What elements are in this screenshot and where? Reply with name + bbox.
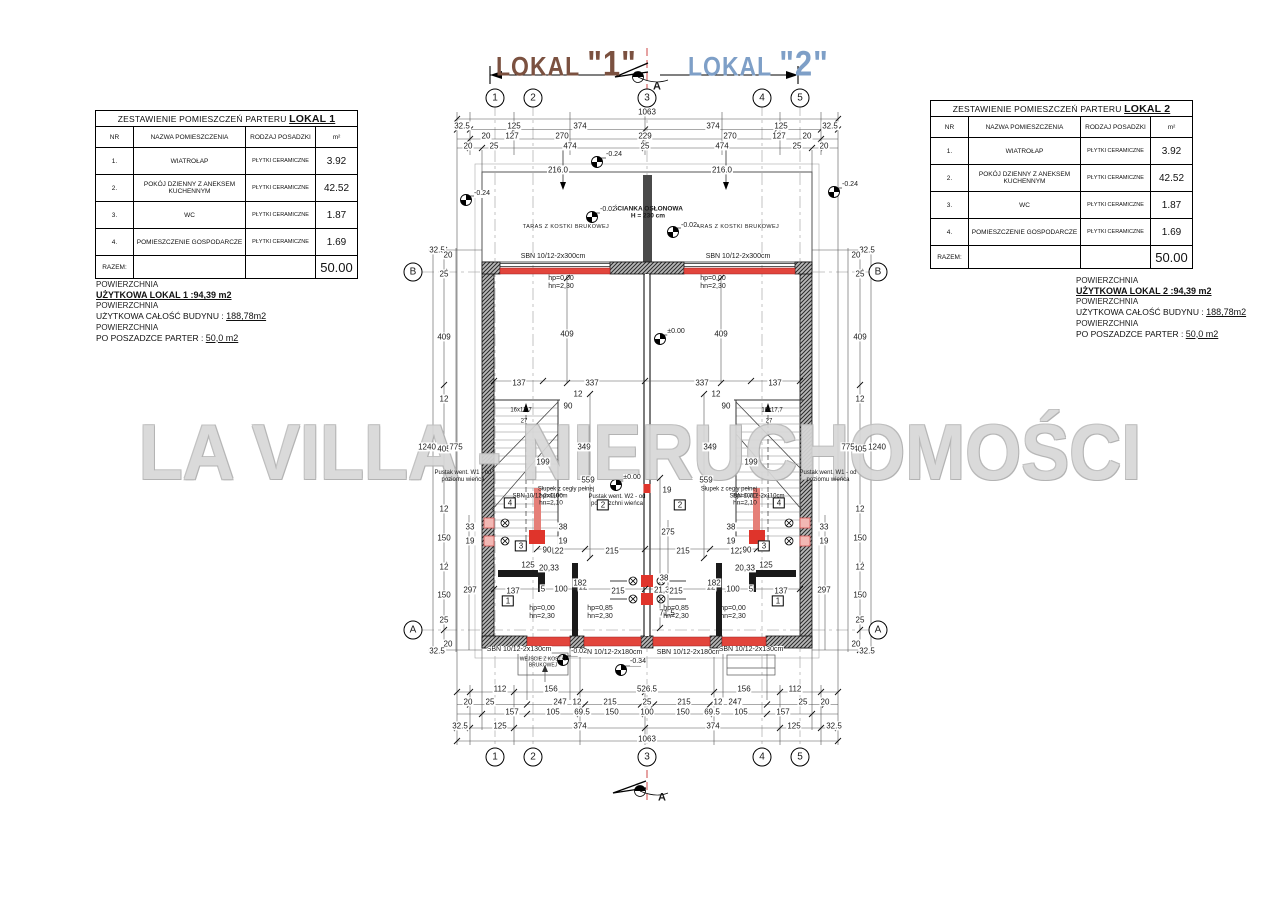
note-total-building: UŻYTKOWA CAŁOŚĆ BUDYNU : 188,78m2: [1076, 307, 1280, 318]
construction-note: Pustak went. W1 - od poziomu wieńca: [434, 470, 491, 484]
section-letter: A: [658, 792, 666, 805]
lintel-label: SBN 10/12-2x180cm: [578, 649, 643, 657]
terrace-label: TARAS Z KOSTKI BRUKOWEJ: [523, 224, 609, 230]
dim-label: 156: [543, 684, 558, 693]
dim-label: 270: [722, 131, 737, 140]
dim-label-vertical: 775: [448, 442, 463, 451]
room-number: 3: [758, 540, 770, 551]
room-number: 4: [504, 497, 516, 508]
dim-label: 125: [506, 121, 521, 130]
dim-label-vertical: 216.0: [711, 165, 733, 174]
dim-label: 1063: [637, 107, 657, 116]
dim-label: 69.5: [573, 707, 591, 716]
dim-label: 247: [552, 697, 567, 706]
table-row: 4.POMIESZCZENIE GOSPODARCZEPŁYTKI CERAMI…: [96, 229, 358, 256]
dim-label: 229: [637, 131, 652, 140]
note-heading: POWIERZCHNIA: [96, 301, 326, 311]
dim-label-vertical: 297: [462, 585, 477, 594]
note-heading: POWIERZCHNIA: [1076, 297, 1280, 307]
dim-label: 112: [788, 684, 803, 693]
dim-label-vertical: 1240: [417, 442, 437, 451]
screen-wall-label: ŚCIANKA OSŁONOWA H = 230 cm: [613, 206, 683, 221]
table-row: 4.POMIESZCZENIE GOSPODARCZEPŁYTKI CERAMI…: [931, 219, 1193, 246]
dim-label: 25: [640, 141, 651, 150]
dim-label-vertical: 409: [713, 329, 728, 338]
total-value: 50.00: [316, 256, 358, 279]
dim-label-vertical: 19: [819, 536, 830, 545]
dim-label: 20: [802, 131, 813, 140]
opening-height-label: hp=0,00 hn=2,30: [529, 605, 555, 621]
dim-label-vertical: 297: [816, 585, 831, 594]
room-number: 4: [773, 497, 785, 508]
dim-label: 25: [485, 697, 496, 706]
table-title-row: ZESTAWIENIE POMIESZCZEŃ PARTERU LOKAL 2: [931, 101, 1193, 117]
dim-label: 215: [604, 546, 619, 555]
dim-label: 247: [727, 697, 742, 706]
dim-label-vertical: 12: [855, 562, 866, 571]
dim-label-vertical: 12: [855, 394, 866, 403]
dim-label-vertical: 20,33: [538, 563, 560, 572]
dim-label: 105: [545, 707, 560, 716]
dim-label: 374: [705, 121, 720, 130]
dim-label-vertical: 90: [742, 545, 753, 554]
dim-label: 100: [639, 707, 654, 716]
opening-height-label: hp=0,00 hn=2,30: [548, 275, 574, 291]
level-label: -0.02: [681, 222, 697, 230]
dim-label-vertical: 32.5: [858, 646, 876, 655]
dim-label-vertical: 25: [855, 615, 866, 624]
grid-bubble: 5: [791, 748, 810, 767]
table-row: 3.WCPŁYTKI CERAMICZNE1.87: [931, 192, 1193, 219]
dim-label: 337: [584, 378, 599, 387]
dim-label-vertical: 559: [580, 475, 595, 484]
lokal1-label: LOKAL "1": [496, 43, 637, 84]
dim-label-vertical: 409: [852, 332, 867, 341]
dim-label: 374: [705, 721, 720, 730]
dim-label: 474: [714, 141, 729, 150]
dim-label: 125: [786, 721, 801, 730]
dim-label: 137: [505, 586, 520, 595]
lintel-label: SBN 10/12-2x300cm: [706, 253, 771, 261]
level-label: -0.24: [842, 181, 858, 189]
lokal1-number: "1": [587, 43, 637, 83]
dim-label-vertical: 38: [659, 573, 670, 582]
dim-label: 215: [676, 697, 691, 706]
level-label: -0.34: [630, 658, 646, 666]
grid-bubble: 5: [791, 89, 810, 108]
dim-label: 215: [602, 697, 617, 706]
dim-label-vertical: 19: [726, 536, 737, 545]
level-label: -0.24: [474, 190, 490, 198]
grid-bubble: 2: [524, 748, 543, 767]
grid-bubble: 3: [638, 748, 657, 767]
note-heading: POWIERZCHNIA: [96, 323, 326, 333]
dim-label-vertical: 25: [855, 269, 866, 278]
dim-label-vertical: 19: [662, 485, 673, 494]
dim-label: 32.5: [821, 121, 839, 130]
stair-label: 27: [766, 419, 773, 426]
lintel-label: SBN 10/12-2x130cm: [719, 646, 784, 654]
dim-label: 20: [820, 697, 831, 706]
total-value: 50.00: [1151, 246, 1193, 269]
col-nr: NR: [96, 127, 134, 148]
dim-label-vertical: 150: [852, 533, 867, 542]
stair-label: 16x17,7: [761, 408, 782, 415]
level-label: ±0.00: [667, 328, 684, 336]
dim-label: 100: [725, 584, 740, 593]
section-letter: A: [653, 81, 661, 94]
opening-height-label: hp=0,85 hn=2,30: [587, 605, 613, 621]
dim-label-vertical: 1240: [867, 442, 887, 451]
note-heading: POWIERZCHNIA: [1076, 276, 1280, 286]
floor-plan-sheet: LA VILLA - NIERUCHOMOŚCI LOKAL "1" LOKAL…: [0, 0, 1280, 905]
entrance-label: WEJŚCIE Z KOSTKI BRUKOWEJ: [520, 657, 566, 669]
col-area: m²: [1151, 117, 1193, 138]
lintel-label: SBN 10/12-2x130cm: [487, 646, 552, 654]
dim-label: 125: [758, 560, 773, 569]
dim-label: 25: [489, 141, 500, 150]
dim-label-vertical: 38: [558, 522, 569, 531]
dim-label-vertical: 33: [465, 522, 476, 531]
dim-label: 150: [604, 707, 619, 716]
dim-label-vertical: 33: [819, 522, 830, 531]
dim-label: 32.5: [451, 721, 469, 730]
dim-label: 25: [642, 697, 653, 706]
dim-label-vertical: 150: [436, 590, 451, 599]
dim-label-vertical: 20: [851, 250, 862, 259]
grid-bubble: A: [869, 621, 888, 640]
construction-note: Słupek z cegły pełnej: [538, 487, 594, 494]
dim-label: 137: [511, 378, 526, 387]
dim-label-vertical: 409: [559, 329, 574, 338]
dim-label: 374: [572, 121, 587, 130]
dim-label: 127: [504, 131, 519, 140]
room-number: 1: [502, 595, 514, 606]
dim-label: 12: [713, 697, 724, 706]
construction-note: SBN 10/12-2x110cm: [513, 494, 568, 501]
dim-label: 270: [554, 131, 569, 140]
dim-label: 20: [481, 131, 492, 140]
dim-label-vertical: 25: [439, 615, 450, 624]
note-usable-area: UŻYTKOWA LOKAL 2 :94,39 m2: [1076, 286, 1280, 297]
level-label: -0.02: [600, 206, 616, 214]
grid-bubble: 4: [753, 748, 772, 767]
grid-bubble: B: [404, 263, 423, 282]
dim-label: 127: [771, 131, 786, 140]
table-title: ZESTAWIENIE POMIESZCZEŃ PARTERU: [953, 104, 1124, 114]
watermark: LA VILLA - NIERUCHOMOŚCI: [139, 409, 1142, 498]
room-number: 1: [772, 595, 784, 606]
dim-label-vertical: 12: [439, 562, 450, 571]
dim-label: 125: [520, 560, 535, 569]
dim-label: 156: [736, 684, 751, 693]
dim-label-vertical: 90: [542, 545, 553, 554]
lokal2-number: "2": [779, 43, 829, 83]
dim-label-vertical: 90: [721, 401, 732, 410]
dim-label: 20: [819, 141, 830, 150]
dim-label: 337: [694, 378, 709, 387]
dim-label-vertical: 20: [443, 250, 454, 259]
dim-label: 20: [463, 141, 474, 150]
stair-label: 16x17,7: [510, 408, 531, 415]
table-title-bold: LOKAL 1: [289, 113, 335, 125]
col-area: m²: [316, 127, 358, 148]
dim-label-vertical: 182: [572, 578, 587, 587]
note-total-building: UŻYTKOWA CAŁOŚĆ BUDYNU : 188,78m2: [96, 311, 326, 322]
table-header-row: NR NAZWA POMIESZCZENIA RODZAJ POSADZKI m…: [96, 127, 358, 148]
dim-label: 137: [773, 586, 788, 595]
col-name: NAZWA POMIESZCZENIA: [969, 117, 1081, 138]
note-heading: POWIERZCHNIA: [96, 280, 326, 290]
dim-label: 157: [775, 707, 790, 716]
dim-label-vertical: 90: [563, 401, 574, 410]
lokal2-prefix: LOKAL: [688, 51, 772, 81]
dim-label-vertical: 409: [436, 332, 451, 341]
lokal1-prefix: LOKAL: [496, 51, 580, 81]
dim-label-vertical: 275: [660, 527, 675, 536]
dim-label-vertical: 12: [711, 389, 722, 398]
dim-label: 25: [792, 141, 803, 150]
dim-label: 112: [493, 684, 508, 693]
dim-label: 5: [540, 584, 546, 593]
col-floor: RODZAJ POSADZKI: [246, 127, 316, 148]
dim-label: 157: [504, 707, 519, 716]
lokal2-label: LOKAL "2": [688, 43, 829, 84]
grid-bubble: 1: [486, 89, 505, 108]
note-heading: POWIERZCHNIA: [1076, 319, 1280, 329]
grid-bubble: B: [869, 263, 888, 282]
dim-label: 215: [675, 546, 690, 555]
lintel-label: SBN 10/12-2x180cm: [657, 649, 722, 657]
dim-label-vertical: 12: [573, 389, 584, 398]
col-nr: NR: [931, 117, 969, 138]
opening-height-label: hp=0,85 hn=2,30: [663, 605, 689, 621]
dim-label-vertical: 19: [558, 536, 569, 545]
opening-height-label: hp=0,00 hn=2,30: [700, 275, 726, 291]
dim-label: 374: [572, 721, 587, 730]
table-total-row: RAZEM:50.00: [96, 256, 358, 279]
dim-label: 69.5: [703, 707, 721, 716]
dim-label: 137: [767, 378, 782, 387]
dim-label-vertical: 150: [436, 533, 451, 542]
grid-bubble: 2: [524, 89, 543, 108]
table-row: 2.POKÓJ DZIENNY Z ANEKSEM KUCHENNYMPŁYTK…: [931, 165, 1193, 192]
dim-label-vertical: 38: [726, 522, 737, 531]
dim-label-vertical: 19: [465, 536, 476, 545]
dim-label: 12: [572, 697, 583, 706]
room-number: 2: [674, 499, 686, 510]
note-usable-area: UŻYTKOWA LOKAL 1 :94,39 m2: [96, 290, 326, 301]
construction-note: Pustak went. W1 - od poziomu wieńca: [799, 470, 856, 484]
dim-label: 105: [733, 707, 748, 716]
terrace-label: TARAS Z KOSTKI BRUKOWEJ: [693, 224, 779, 230]
table-title-row: ZESTAWIENIE POMIESZCZEŃ PARTERU LOKAL 1: [96, 111, 358, 127]
dim-label-vertical: 199: [535, 457, 550, 466]
dim-label: 100: [553, 584, 568, 593]
construction-note: Słupek z cegły pełnej: [701, 487, 757, 494]
level-label: ±0.00: [623, 474, 640, 482]
rooms-table-lokal2: ZESTAWIENIE POMIESZCZEŃ PARTERU LOKAL 2 …: [930, 100, 1193, 269]
col-floor: RODZAJ POSADZKI: [1081, 117, 1151, 138]
table-header-row: NR NAZWA POMIESZCZENIA RODZAJ POSADZKI m…: [931, 117, 1193, 138]
dim-label: 215: [668, 586, 683, 595]
total-label: RAZEM:: [931, 246, 969, 269]
dim-label: 526.5: [636, 684, 658, 693]
col-name: NAZWA POMIESZCZENIA: [134, 127, 246, 148]
dim-label: 125: [492, 721, 507, 730]
dim-label-vertical: 775: [840, 442, 855, 451]
total-label: RAZEM:: [96, 256, 134, 279]
area-notes-lokal1: POWIERZCHNIA UŻYTKOWA LOKAL 1 :94,39 m2 …: [96, 280, 326, 344]
dim-label-vertical: 349: [702, 442, 717, 451]
lintel-label: SBN 10/12-2x300cm: [521, 253, 586, 261]
room-number: 2: [597, 499, 609, 510]
dim-label: 32.5: [453, 121, 471, 130]
opening-height-label: hp=0,00 hn=2,30: [720, 605, 746, 621]
dim-label: 474: [562, 141, 577, 150]
area-notes-lokal2: POWIERZCHNIA UŻYTKOWA LOKAL 2 :94,39 m2 …: [1076, 276, 1280, 340]
note-floor-area: PO POSZADZCE PARTER : 50,0 m2: [96, 333, 326, 344]
dim-label-vertical: 12: [439, 394, 450, 403]
dim-label: 125: [773, 121, 788, 130]
dim-label-vertical: 20,33: [734, 563, 756, 572]
rooms-table-lokal1: ZESTAWIENIE POMIESZCZEŃ PARTERU LOKAL 1 …: [95, 110, 358, 279]
room-number: 3: [515, 540, 527, 551]
grid-bubble: 4: [753, 89, 772, 108]
dim-label: 5: [748, 584, 754, 593]
dim-label: 1063: [637, 734, 657, 743]
dim-label-vertical: 199: [743, 457, 758, 466]
table-title: ZESTAWIENIE POMIESZCZEŃ PARTERU: [118, 114, 289, 124]
dim-label-vertical: 12: [855, 504, 866, 513]
dim-label-vertical: 216.0: [547, 165, 569, 174]
dim-label: 20: [463, 697, 474, 706]
dim-label-vertical: 559: [698, 475, 713, 484]
dim-label-vertical: 32.5: [428, 646, 446, 655]
level-label: -0.02: [571, 648, 587, 656]
table-row: 1.WIATROŁAPPŁYTKI CERAMICZNE3.92: [96, 148, 358, 175]
dim-label-vertical: 25: [439, 269, 450, 278]
dim-label: 32.5: [825, 721, 843, 730]
table-title-bold: LOKAL 2: [1124, 103, 1170, 115]
dim-label: 215: [610, 586, 625, 595]
dim-label-vertical: 182: [706, 578, 721, 587]
table-row: 2.POKÓJ DZIENNY Z ANEKSEM KUCHENNYMPŁYTK…: [96, 175, 358, 202]
level-label: -0.24: [606, 151, 622, 159]
grid-bubble: A: [404, 621, 423, 640]
stair-label: 27: [521, 419, 528, 426]
dim-label: 25: [798, 697, 809, 706]
table-row: 1.WIATROŁAPPŁYTKI CERAMICZNE3.92: [931, 138, 1193, 165]
note-floor-area: PO POSZADZCE PARTER : 50,0 m2: [1076, 329, 1280, 340]
table-row: 3.WCPŁYTKI CERAMICZNE1.87: [96, 202, 358, 229]
grid-bubble: 1: [486, 748, 505, 767]
dim-label-vertical: 150: [852, 590, 867, 599]
dim-label-vertical: 12: [439, 504, 450, 513]
dim-label-vertical: 349: [576, 442, 591, 451]
table-total-row: RAZEM:50.00: [931, 246, 1193, 269]
dim-label: 150: [675, 707, 690, 716]
